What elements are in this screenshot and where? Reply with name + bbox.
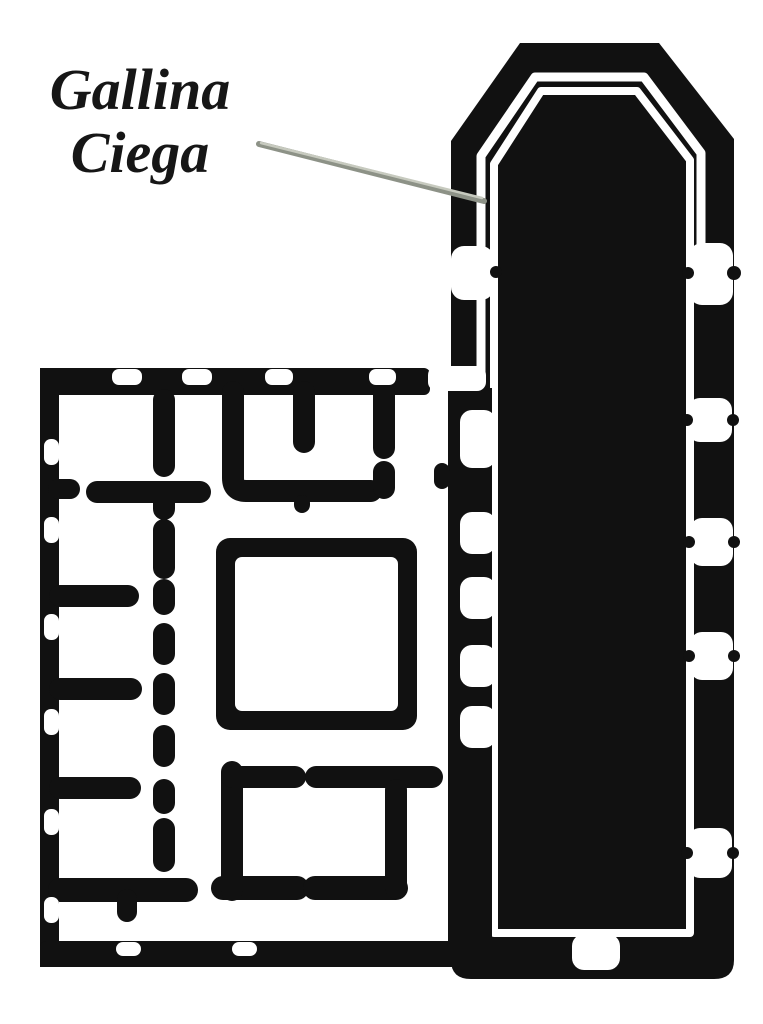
right-wall-window-1 xyxy=(682,243,741,305)
annotation-label-line2: Ciega xyxy=(24,121,256,184)
annotation-label: Gallina Ciega xyxy=(24,58,256,184)
entrance-door-opening xyxy=(572,934,620,970)
junction-door-2 xyxy=(460,512,496,554)
junction-door-5 xyxy=(460,706,496,748)
floor-plan-page: Gallina Ciega xyxy=(0,0,763,1024)
junction-door-3 xyxy=(460,577,496,619)
right-wall-window-3 xyxy=(683,518,740,566)
church-tower xyxy=(451,43,741,979)
junction-door-1 xyxy=(460,410,496,468)
right-wall-window-2 xyxy=(681,398,739,442)
cloister-courtyard xyxy=(216,538,417,730)
junction-passage-notch xyxy=(428,366,486,391)
left-wall-notch-4 xyxy=(44,709,59,735)
junction-wall-tab xyxy=(434,463,450,489)
top-wall-notch-1 xyxy=(112,369,142,385)
top-wall-notch-3 xyxy=(265,369,293,385)
left-wall-notch-2 xyxy=(44,517,59,543)
convent-block xyxy=(40,366,496,967)
annotation-label-line1: Gallina xyxy=(24,58,256,121)
junction-door-4 xyxy=(460,645,496,687)
right-wall-window-5 xyxy=(681,828,739,878)
left-wall-notch-6 xyxy=(44,897,59,923)
right-wall-window-4 xyxy=(683,632,740,680)
bottom-wall-notch-2 xyxy=(232,942,257,956)
top-wall-notch-2 xyxy=(182,369,212,385)
top-wall-notch-4 xyxy=(369,369,396,385)
leader-line xyxy=(259,143,484,201)
left-wall-notch-3 xyxy=(44,614,59,640)
left-wall-notch-1 xyxy=(44,439,59,465)
courtyard-open-space xyxy=(235,557,398,711)
left-wall-notch-5 xyxy=(44,809,59,835)
bottom-wall-notch-1 xyxy=(116,942,141,956)
